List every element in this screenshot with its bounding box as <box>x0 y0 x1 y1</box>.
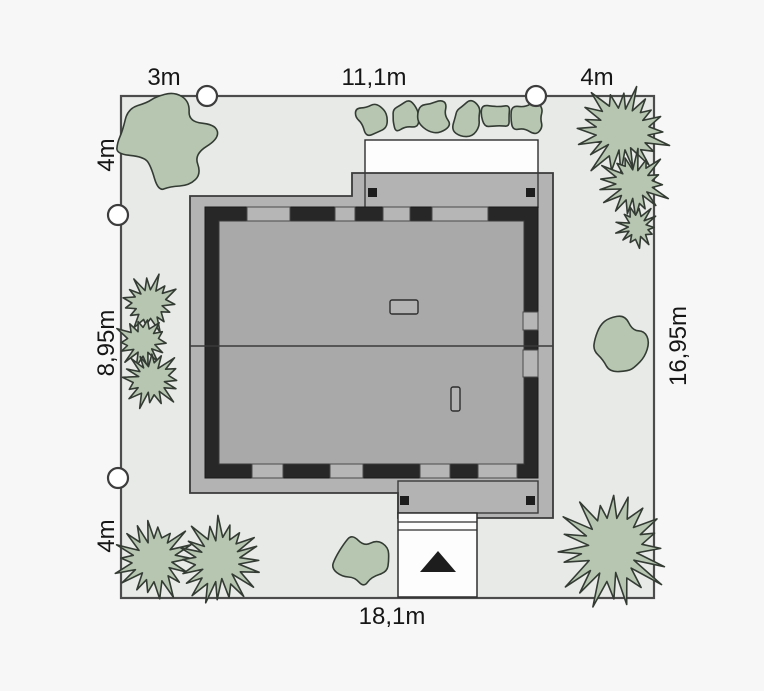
boundary-marker-icon <box>108 205 128 225</box>
boundary-marker-icon <box>108 468 128 488</box>
window <box>252 464 283 478</box>
window <box>330 464 363 478</box>
dimension-label-left-top: 4m <box>93 138 120 171</box>
site-plan-page: 3m 11,1m 4m 4m 8,95m 4m 16,95m 18,1m <box>0 0 764 691</box>
site-plan-drawing: 3m 11,1m 4m 4m 8,95m 4m 16,95m 18,1m <box>0 0 764 691</box>
window <box>335 207 355 221</box>
dimension-label-left-middle: 8,95m <box>93 310 120 377</box>
window <box>432 207 488 221</box>
roof-post <box>526 188 535 197</box>
roof-post <box>400 496 409 505</box>
window <box>247 207 290 221</box>
chimney <box>390 300 418 314</box>
chimney <box>451 387 460 411</box>
boundary-marker-icon <box>526 86 546 106</box>
boundary-marker-icon <box>197 86 217 106</box>
window <box>523 350 538 377</box>
window <box>523 312 538 330</box>
window <box>478 464 517 478</box>
round-tree-icon <box>481 106 509 127</box>
dimension-label-top-right: 4m <box>580 64 613 91</box>
dimension-label-top-left: 3m <box>147 64 180 91</box>
dimension-label-bottom: 18,1m <box>359 603 426 630</box>
dimension-label-top-middle: 11,1m <box>342 64 407 91</box>
house-interior <box>219 221 524 464</box>
roof-post <box>368 188 377 197</box>
window <box>420 464 450 478</box>
roof-post <box>526 496 535 505</box>
dimension-label-left-bottom: 4m <box>93 519 120 552</box>
window <box>383 207 410 221</box>
dimension-label-right: 16,95m <box>665 306 692 386</box>
